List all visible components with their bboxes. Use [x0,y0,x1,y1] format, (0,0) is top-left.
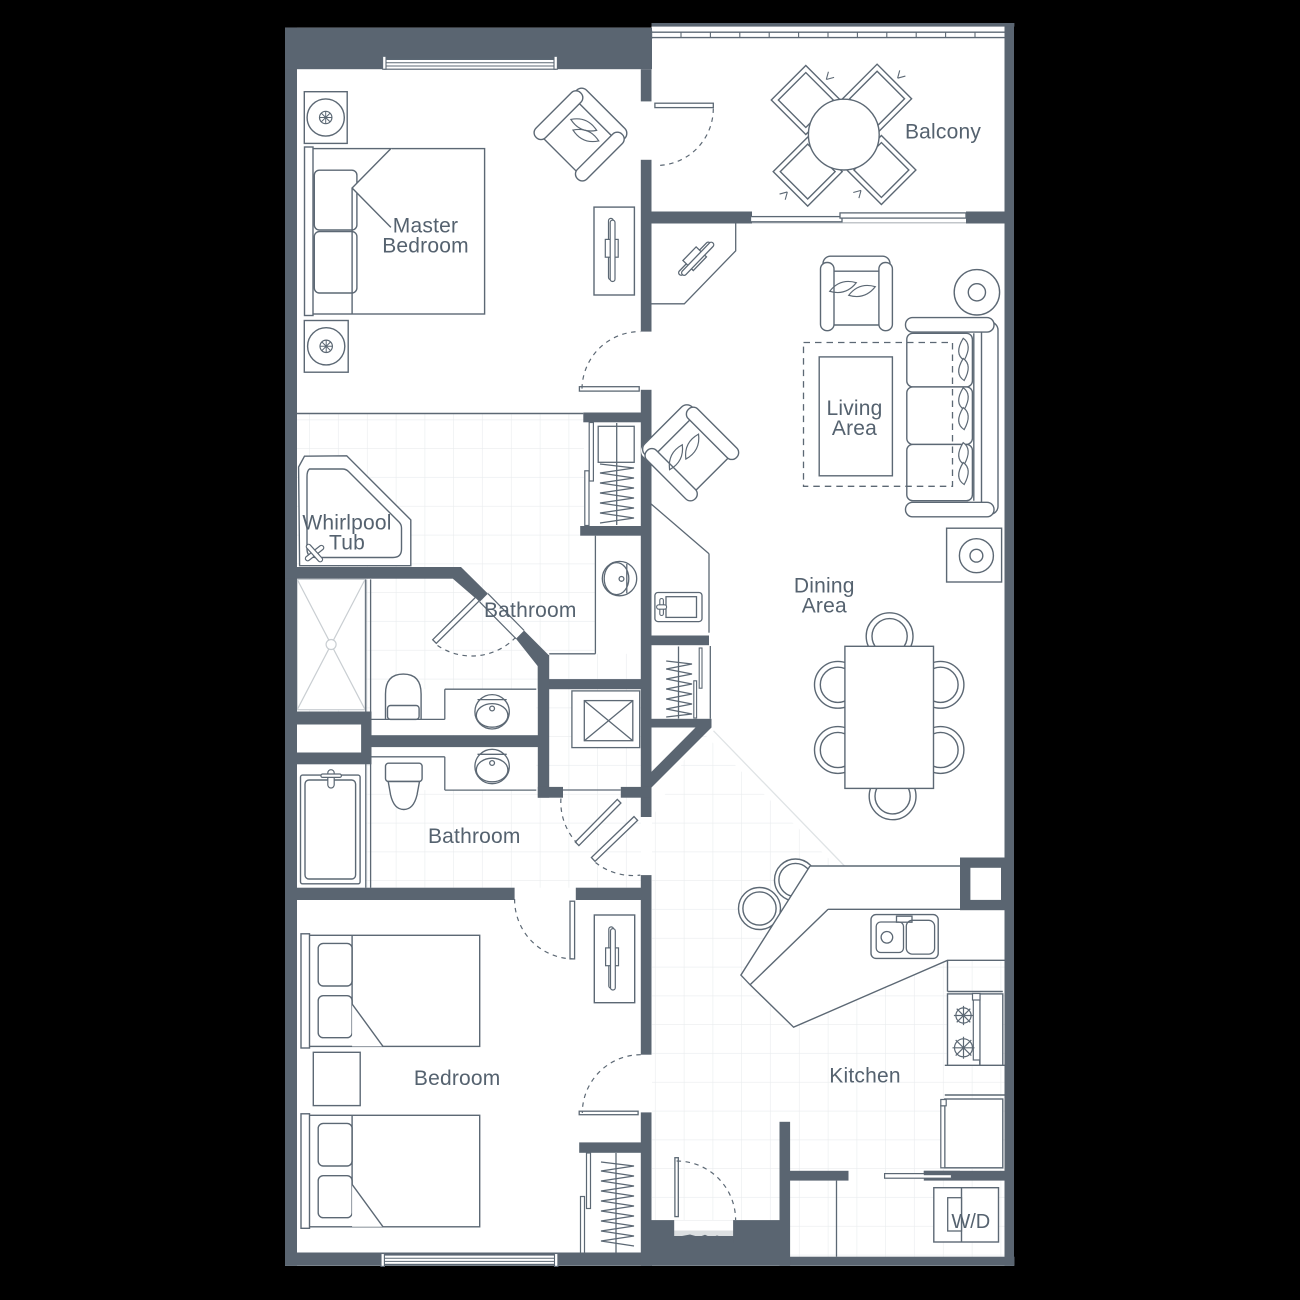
svg-text:Bedroom: Bedroom [414,1067,501,1090]
svg-text:Bedroom: Bedroom [382,235,469,258]
svg-text:Bathroom: Bathroom [428,825,521,848]
svg-text:Area: Area [832,417,877,440]
svg-text:Kitchen: Kitchen [829,1065,900,1088]
svg-text:Area: Area [802,595,847,618]
svg-text:Balcony: Balcony [905,121,981,144]
svg-text:Tub: Tub [329,532,365,555]
svg-text:Bathroom: Bathroom [484,599,577,622]
svg-text:W/D: W/D [951,1211,990,1233]
